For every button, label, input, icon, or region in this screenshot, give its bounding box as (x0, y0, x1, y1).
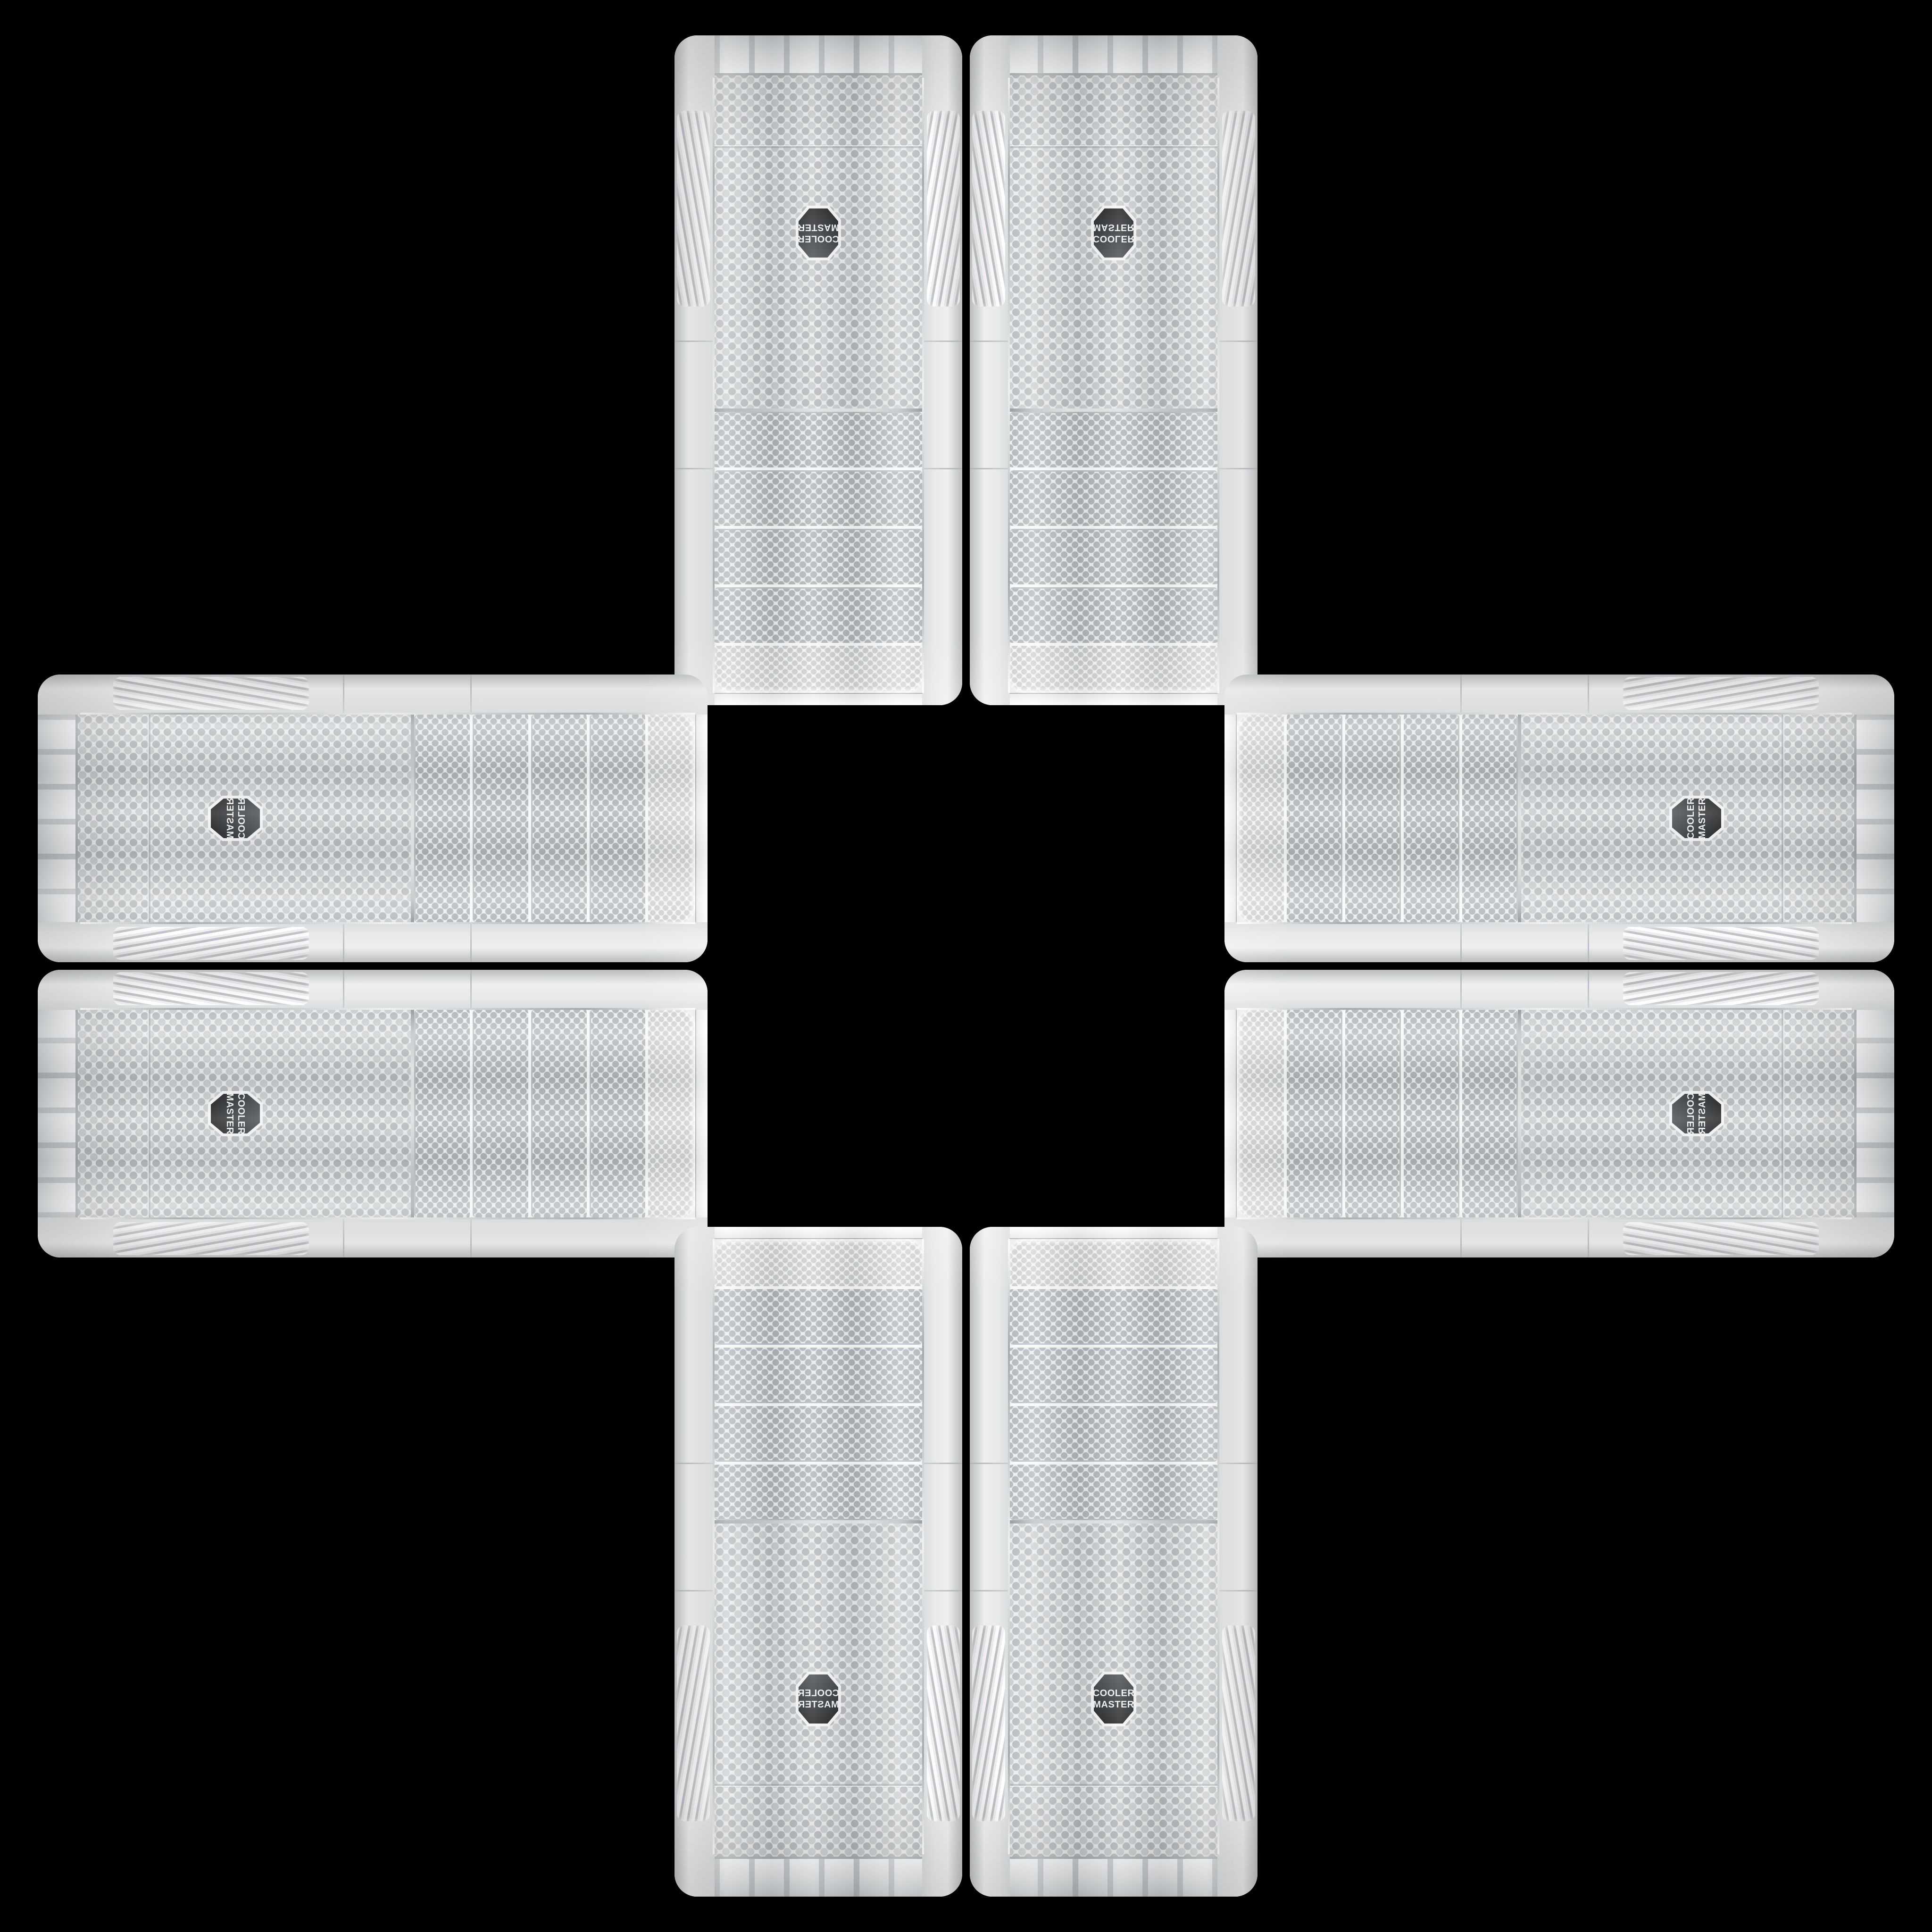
mesh-seam (1010, 1784, 1217, 1786)
side-bezel-left (38, 970, 708, 1010)
brand-line2: MASTER (1093, 1700, 1134, 1710)
brand-line1: COOLER (1093, 234, 1135, 244)
drive-bay-cover-3 (473, 715, 531, 922)
grip-ribs-left-icon (1623, 927, 1819, 960)
drive-bay-cover-2 (531, 715, 590, 922)
bottom-cap (678, 1857, 958, 1897)
brand-line1: COOLER (236, 798, 246, 840)
side-bezel-left (38, 922, 708, 962)
front-mesh-panel: COOLER MASTER (1521, 1010, 1854, 1217)
cooler-master-logo-face: COOLER MASTER (1094, 1674, 1133, 1724)
side-bezel-right (38, 1217, 708, 1257)
cooler-master-logo-face: COOLER MASTER (211, 799, 260, 838)
case-left-bottom-horizontal: COOLER MASTER (38, 970, 708, 1257)
case-left-bottom-horizontal-orienter: COOLER MASTER (38, 970, 708, 1257)
bottom-cap (38, 974, 78, 1254)
drive-bay-cover-1 (1284, 1010, 1342, 1217)
brand-line2: MASTER (1698, 798, 1707, 839)
drive-bay-cover-3 (1401, 1010, 1459, 1217)
drive-bay-cover-4 (1010, 1462, 1217, 1520)
case-top-right-vertical-orienter: COOLER MASTER (970, 35, 1257, 705)
drive-bay-cover-2 (531, 1010, 590, 1217)
drive-bay-cover-1 (1010, 587, 1217, 646)
case-left-top-horizontal: COOLER MASTER (38, 675, 708, 962)
drive-bay-cover-1 (715, 587, 922, 646)
grip-ribs-right-icon (677, 111, 710, 307)
top-cap (1224, 974, 1236, 1254)
chrome-trim (715, 408, 922, 412)
cooler-master-logo-badge: COOLER MASTER (1669, 796, 1724, 841)
top-cap (696, 678, 708, 958)
brand-line1: COOLER (798, 234, 840, 244)
pc-case: COOLER MASTER (38, 970, 708, 1257)
chrome-trim (1010, 408, 1217, 412)
cooler-master-logo-face: COOLER MASTER (1672, 799, 1721, 838)
side-bezel-right (1217, 35, 1257, 705)
cooler-master-logo-badge: COOLER MASTER (1091, 206, 1136, 260)
bottom-cap (974, 35, 1254, 75)
drive-bay-cover-4 (715, 1462, 922, 1520)
front-mesh-panel: COOLER MASTER (715, 75, 922, 408)
cooler-master-logo-badge: COOLER MASTER (796, 206, 841, 260)
grip-ribs-right-icon (113, 1222, 309, 1255)
front-mesh-panel: COOLER MASTER (715, 1524, 922, 1857)
drive-bay-cover-2 (1010, 1345, 1217, 1403)
case-top-left-vertical-orienter: COOLER MASTER (675, 35, 962, 705)
drive-bay-cover-2 (1342, 715, 1401, 922)
drive-bay-cover-1 (1010, 1286, 1217, 1345)
pc-case: COOLER MASTER (1224, 675, 1894, 962)
front-mesh-panel: COOLER MASTER (1521, 715, 1854, 922)
bottom-cap (1854, 678, 1894, 958)
case-bottom-left-vertical: COOLER MASTER (675, 1227, 962, 1897)
brand-line2: MASTER (225, 1093, 235, 1134)
top-cap (1224, 678, 1236, 958)
top-cap (974, 694, 1254, 705)
case-right-bottom-horizontal-orienter: COOLER MASTER (1224, 970, 1894, 1257)
grip-ribs-left-icon (927, 111, 960, 307)
pc-case: COOLER MASTER (970, 35, 1257, 705)
drive-bay-cover-1 (590, 715, 648, 922)
side-bezel-left (970, 1227, 1010, 1897)
chrome-trim (1518, 715, 1521, 922)
cooler-master-logo-face: COOLER MASTER (1094, 208, 1133, 258)
case-bottom-right-vertical: COOLER MASTER (970, 1227, 1257, 1897)
brand-line1: COOLER (1686, 1093, 1696, 1135)
front-mesh-panel: COOLER MASTER (1010, 1524, 1217, 1857)
grip-ribs-left-icon (927, 1625, 960, 1821)
case-bottom-right-vertical-orienter: COOLER MASTER (970, 1227, 1257, 1897)
side-bezel-left (922, 1227, 962, 1897)
bottom-cap (38, 678, 78, 958)
drive-bay-cover-3 (715, 1403, 922, 1462)
cooler-master-logo-face: COOLER MASTER (1672, 1094, 1721, 1133)
drive-bay-cover-1 (1284, 715, 1342, 922)
chrome-trim (411, 715, 414, 922)
top-vent-mesh (715, 646, 922, 693)
case-top-left-vertical: COOLER MASTER (675, 35, 962, 705)
chrome-trim (715, 1520, 922, 1524)
side-bezel-right (1224, 1217, 1894, 1257)
grip-ribs-left-icon (1623, 972, 1819, 1005)
side-bezel-left (1224, 970, 1894, 1010)
top-vent-mesh (648, 1010, 695, 1217)
pc-case: COOLER MASTER (970, 1227, 1257, 1897)
brand-line2: MASTER (798, 1700, 839, 1710)
drive-bay-cover-4 (414, 715, 473, 922)
case-right-bottom-horizontal: COOLER MASTER (1224, 970, 1894, 1257)
pc-case: COOLER MASTER (675, 1227, 962, 1897)
drive-bay-cover-4 (1459, 715, 1518, 922)
bottom-cap (974, 1857, 1254, 1897)
grip-ribs-right-icon (1222, 111, 1255, 307)
top-cap (696, 974, 708, 1254)
case-bottom-left-vertical-orienter: COOLER MASTER (675, 1227, 962, 1897)
cooler-master-logo-face: COOLER MASTER (211, 1094, 260, 1133)
drive-bay-cover-3 (715, 470, 922, 529)
front-mesh-panel: COOLER MASTER (78, 715, 411, 922)
grip-ribs-left-icon (113, 927, 309, 960)
top-vent-mesh (1237, 1010, 1284, 1217)
pc-case: COOLER MASTER (1224, 970, 1894, 1257)
drive-bay-cover-3 (473, 1010, 531, 1217)
brand-line2: MASTER (798, 223, 839, 233)
cooler-master-logo-face: COOLER MASTER (799, 208, 838, 258)
mesh-seam (149, 715, 150, 922)
drive-bay-cover-2 (715, 529, 922, 587)
front-mesh-panel: COOLER MASTER (1010, 75, 1217, 408)
side-bezel-right (1217, 1227, 1257, 1897)
cooler-master-logo-face: COOLER MASTER (799, 1674, 838, 1724)
cooler-master-logo-badge: COOLER MASTER (208, 796, 263, 841)
chrome-trim (1518, 1010, 1521, 1217)
brand-line2: MASTER (225, 798, 235, 839)
side-bezel-right (675, 1227, 715, 1897)
pc-case: COOLER MASTER (675, 35, 962, 705)
bottom-cap (678, 35, 958, 75)
brand-line1: COOLER (1093, 1689, 1135, 1699)
drive-bay-cover-2 (1342, 1010, 1401, 1217)
brand-line1: COOLER (236, 1093, 246, 1135)
cooler-master-logo-badge: COOLER MASTER (796, 1672, 841, 1726)
brand-line2: MASTER (1698, 1093, 1707, 1134)
top-cap (678, 1227, 958, 1238)
cooler-master-logo-badge: COOLER MASTER (208, 1091, 263, 1136)
side-bezel-left (922, 35, 962, 705)
top-vent-mesh (1237, 715, 1284, 922)
drive-bay-cover-1 (715, 1286, 922, 1345)
mesh-seam (1782, 1010, 1783, 1217)
brand-line1: COOLER (798, 1689, 840, 1699)
mesh-seam (1010, 146, 1217, 148)
drive-bay-cover-3 (1010, 1403, 1217, 1462)
mesh-seam (149, 1010, 150, 1217)
drive-bay-cover-1 (590, 1010, 648, 1217)
front-mesh-panel: COOLER MASTER (78, 1010, 411, 1217)
grip-ribs-right-icon (113, 677, 309, 710)
drive-bay-cover-2 (1010, 529, 1217, 587)
drive-bay-cover-4 (715, 412, 922, 470)
top-vent-mesh (1010, 646, 1217, 693)
pc-case: COOLER MASTER (38, 675, 708, 962)
grip-ribs-right-icon (1222, 1625, 1255, 1821)
cooler-master-logo-badge: COOLER MASTER (1669, 1091, 1724, 1136)
grip-ribs-right-icon (1623, 1222, 1819, 1255)
side-bezel-right (675, 35, 715, 705)
cooler-master-logo-badge: COOLER MASTER (1091, 1672, 1136, 1726)
top-vent-mesh (648, 715, 695, 922)
mesh-seam (715, 1784, 922, 1786)
case-left-top-horizontal-orienter: COOLER MASTER (38, 675, 708, 962)
grip-ribs-left-icon (113, 972, 309, 1005)
drive-bay-cover-3 (1401, 715, 1459, 922)
mesh-seam (715, 146, 922, 148)
brand-line2: MASTER (1093, 223, 1134, 233)
top-cap (974, 1227, 1254, 1238)
brand-line1: COOLER (1686, 798, 1696, 840)
case-right-top-horizontal-orienter: COOLER MASTER (1224, 675, 1894, 962)
side-bezel-left (970, 35, 1010, 705)
drive-bay-cover-2 (715, 1345, 922, 1403)
drive-bay-cover-4 (1010, 412, 1217, 470)
side-bezel-left (1224, 922, 1894, 962)
case-right-top-horizontal: COOLER MASTER (1224, 675, 1894, 962)
grip-ribs-left-icon (972, 1625, 1005, 1821)
bottom-cap (1854, 974, 1894, 1254)
case-top-right-vertical: COOLER MASTER (970, 35, 1257, 705)
top-vent-mesh (715, 1239, 922, 1286)
mesh-seam (1782, 715, 1783, 922)
top-cap (678, 694, 958, 705)
drive-bay-cover-4 (414, 1010, 473, 1217)
chrome-trim (411, 1010, 414, 1217)
side-bezel-right (1224, 675, 1894, 715)
top-vent-mesh (1010, 1239, 1217, 1286)
grip-ribs-left-icon (972, 111, 1005, 307)
side-bezel-right (38, 675, 708, 715)
chrome-trim (1010, 1520, 1217, 1524)
drive-bay-cover-3 (1010, 470, 1217, 529)
grip-ribs-right-icon (1623, 677, 1819, 710)
grip-ribs-right-icon (677, 1625, 710, 1821)
composition-canvas: COOLER MASTER (0, 0, 1932, 1932)
drive-bay-cover-4 (1459, 1010, 1518, 1217)
